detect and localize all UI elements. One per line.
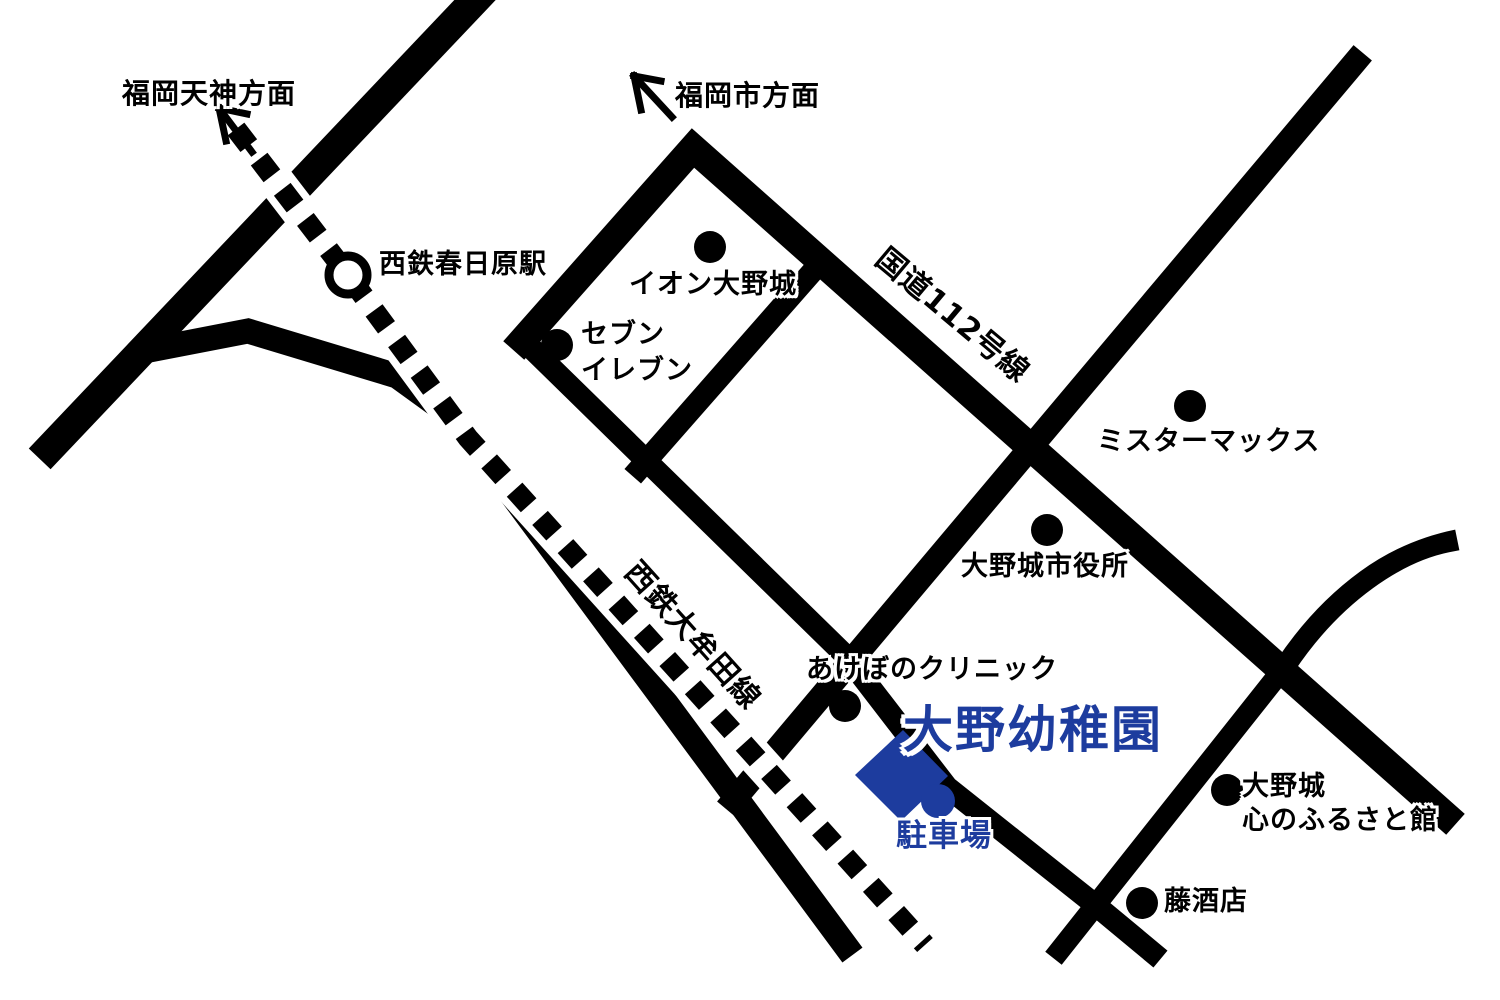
poi-label-onojo-city-hall: 大野城市役所 [961,549,1129,585]
road-network [0,0,1500,1000]
poi-label-kokoro-line2: 心のふるさと館 [1242,804,1438,838]
poi-label-seven-eleven: セブン イレブン [581,317,693,389]
poi-dot-akebono-clinic [829,690,861,722]
poi-label-seven-eleven-line1: セブン [581,317,693,353]
poi-label-akebono-clinic: あけぼのクリニック [806,652,1058,688]
fukuoka-city-direction-arrow-icon [634,76,672,117]
poi-label-seven-eleven-line2: イレブン [581,353,693,389]
poi-dot-onojo-city-hall [1031,514,1063,546]
direction-label-fukuoka-city: 福岡市方面 [675,78,820,114]
direction-label-tenjin: 福岡天神方面 [122,76,296,112]
poi-label-kokoro-furusato-kan: 大野城 心のふるさと館 [1242,770,1438,838]
parking-dot [921,784,955,818]
parking-label: 駐車場 [896,818,992,854]
poi-dot-seven-eleven [541,329,573,361]
poi-dot-fuji-sake-shop [1126,887,1158,919]
poi-dot-mister-max [1174,390,1206,422]
poi-label-aeon-onojo: イオン大野城 [629,267,797,303]
poi-label-mister-max: ミスターマックス [1097,424,1320,460]
station-circle-icon [329,256,367,294]
access-map: 福岡天神方面 福岡市方面 西鉄春日原駅 西鉄大牟田線 国道112号線 イオン大野… [0,0,1500,1000]
poi-label-kokoro-line1: 大野城 [1242,770,1438,804]
poi-label-fuji-sake-shop: 藤酒店 [1164,884,1248,920]
road-branch-along-railway [160,331,845,945]
destination-label-kindergarten: 大野幼稚園 [903,712,1163,748]
poi-dot-kokoro-furusato-kan [1211,774,1243,806]
poi-dot-aeon-onojo [694,231,726,263]
station-label: 西鉄春日原駅 [379,247,547,283]
